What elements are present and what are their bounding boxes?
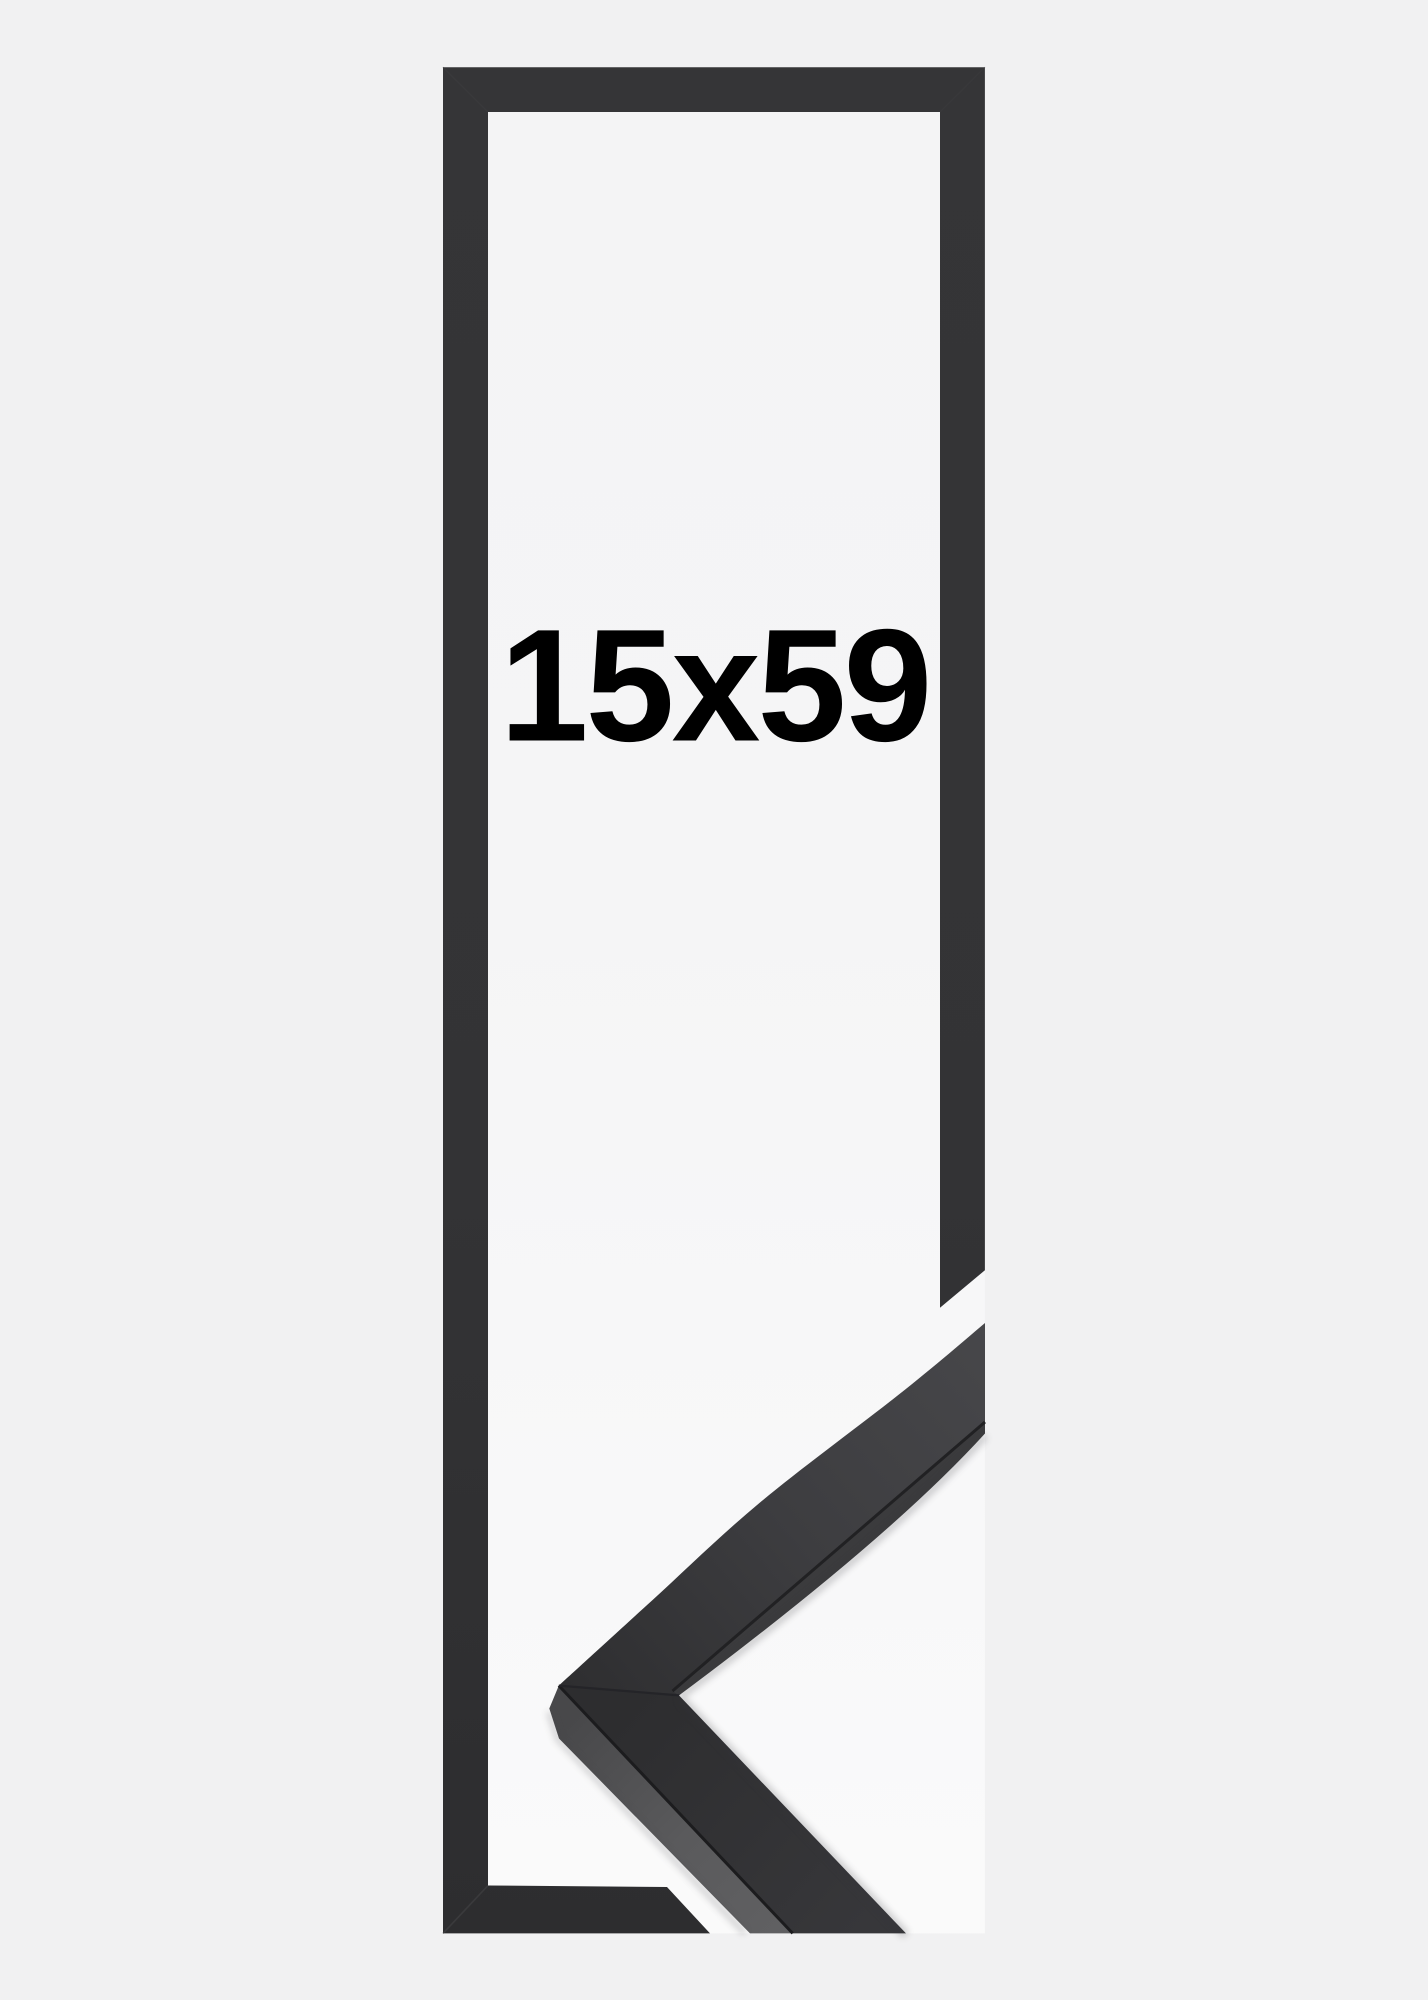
svg-text:15x59: 15x59 bbox=[500, 596, 930, 775]
